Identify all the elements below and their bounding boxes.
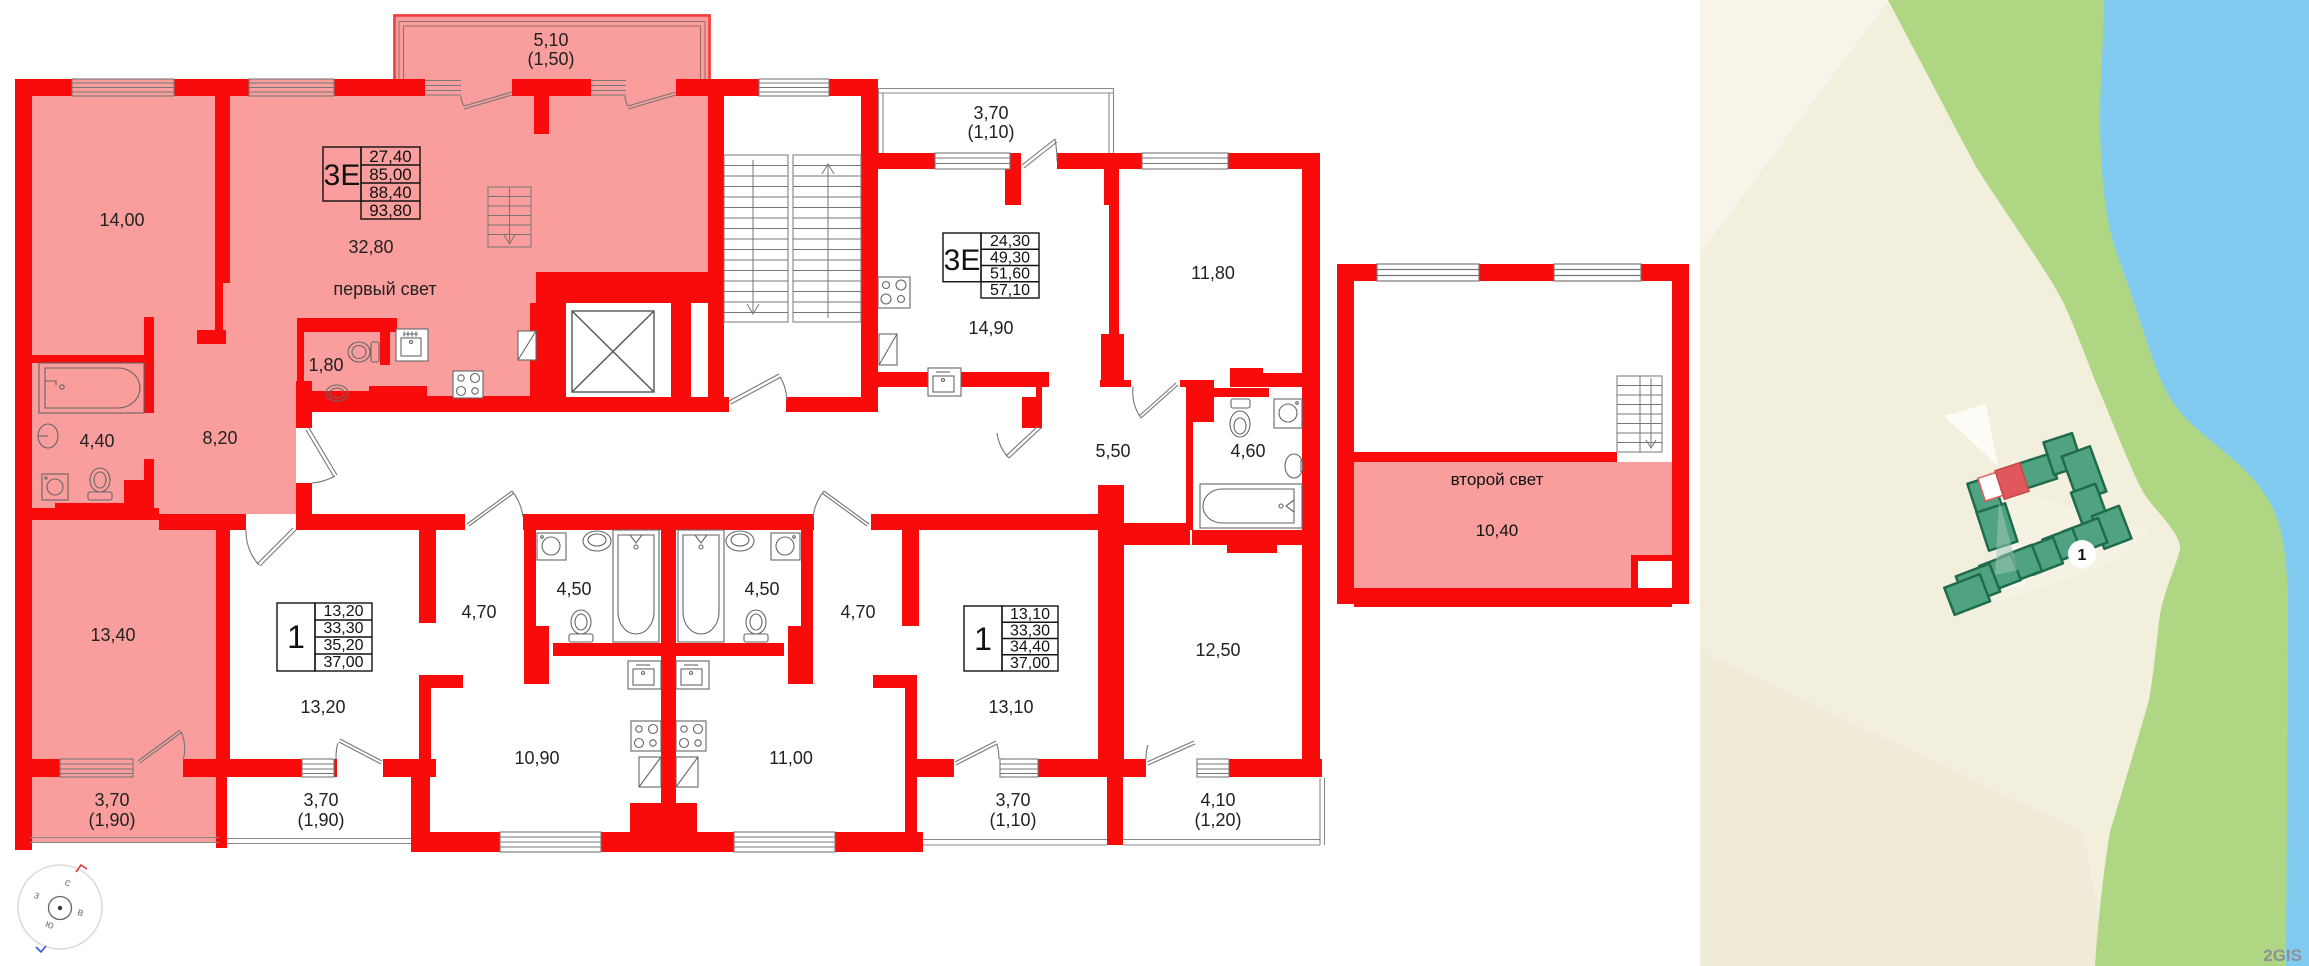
svg-text:5,50: 5,50	[1095, 441, 1130, 461]
svg-text:34,40: 34,40	[1010, 639, 1050, 656]
svg-text:11,00: 11,00	[769, 748, 813, 768]
svg-text:37,00: 37,00	[323, 654, 363, 671]
svg-text:1: 1	[2078, 547, 2087, 564]
svg-text:32,80: 32,80	[348, 237, 393, 257]
svg-text:5,10: 5,10	[533, 30, 568, 50]
svg-text:57,10: 57,10	[990, 282, 1030, 299]
svg-text:93,80: 93,80	[369, 201, 412, 220]
svg-text:10,90: 10,90	[514, 748, 559, 768]
svg-text:85,00: 85,00	[369, 165, 412, 184]
svg-text:13,20: 13,20	[323, 603, 363, 620]
svg-text:4,40: 4,40	[79, 431, 114, 451]
svg-text:4,50: 4,50	[556, 579, 591, 599]
svg-text:3,70: 3,70	[973, 103, 1008, 123]
svg-text:2GIS: 2GIS	[2263, 946, 2302, 965]
svg-text:(1,90): (1,90)	[88, 810, 135, 830]
svg-text:14,00: 14,00	[99, 210, 144, 230]
svg-text:3Е: 3Е	[944, 244, 981, 277]
svg-text:51,60: 51,60	[990, 266, 1030, 283]
svg-text:8,20: 8,20	[202, 428, 237, 448]
svg-text:4,70: 4,70	[461, 602, 496, 622]
svg-text:(1,20): (1,20)	[1194, 810, 1241, 830]
svg-text:второй свет: второй свет	[1451, 470, 1544, 489]
svg-text:33,30: 33,30	[323, 620, 363, 637]
svg-text:13,20: 13,20	[300, 697, 345, 717]
svg-text:14,90: 14,90	[968, 318, 1013, 338]
svg-text:(1,50): (1,50)	[527, 49, 574, 69]
svg-text:27,40: 27,40	[369, 147, 412, 166]
svg-text:(1,90): (1,90)	[297, 810, 344, 830]
svg-text:24,30: 24,30	[990, 233, 1030, 250]
svg-text:первый свет: первый свет	[333, 279, 436, 299]
svg-text:1,80: 1,80	[308, 355, 343, 375]
svg-text:49,30: 49,30	[990, 250, 1030, 267]
svg-text:4,60: 4,60	[1230, 441, 1265, 461]
svg-text:1: 1	[287, 619, 305, 655]
svg-text:1: 1	[974, 621, 992, 657]
svg-text:3,70: 3,70	[94, 790, 129, 810]
svg-text:4,10: 4,10	[1200, 790, 1235, 810]
svg-text:10,40: 10,40	[1476, 521, 1519, 540]
svg-text:37,00: 37,00	[1010, 655, 1050, 672]
svg-text:(1,10): (1,10)	[967, 122, 1014, 142]
svg-text:11,80: 11,80	[1191, 263, 1235, 283]
svg-text:3,70: 3,70	[995, 790, 1030, 810]
svg-text:(1,10): (1,10)	[989, 810, 1036, 830]
svg-text:33,30: 33,30	[1010, 623, 1050, 640]
svg-text:4,70: 4,70	[840, 602, 875, 622]
svg-text:3Е: 3Е	[324, 159, 361, 192]
svg-text:13,10: 13,10	[1010, 606, 1050, 623]
svg-text:35,20: 35,20	[323, 637, 363, 654]
svg-text:13,10: 13,10	[988, 697, 1033, 717]
svg-text:3,70: 3,70	[303, 790, 338, 810]
svg-text:4,50: 4,50	[744, 579, 779, 599]
svg-text:88,40: 88,40	[369, 183, 412, 202]
svg-text:12,50: 12,50	[1195, 640, 1240, 660]
svg-text:13,40: 13,40	[90, 625, 135, 645]
